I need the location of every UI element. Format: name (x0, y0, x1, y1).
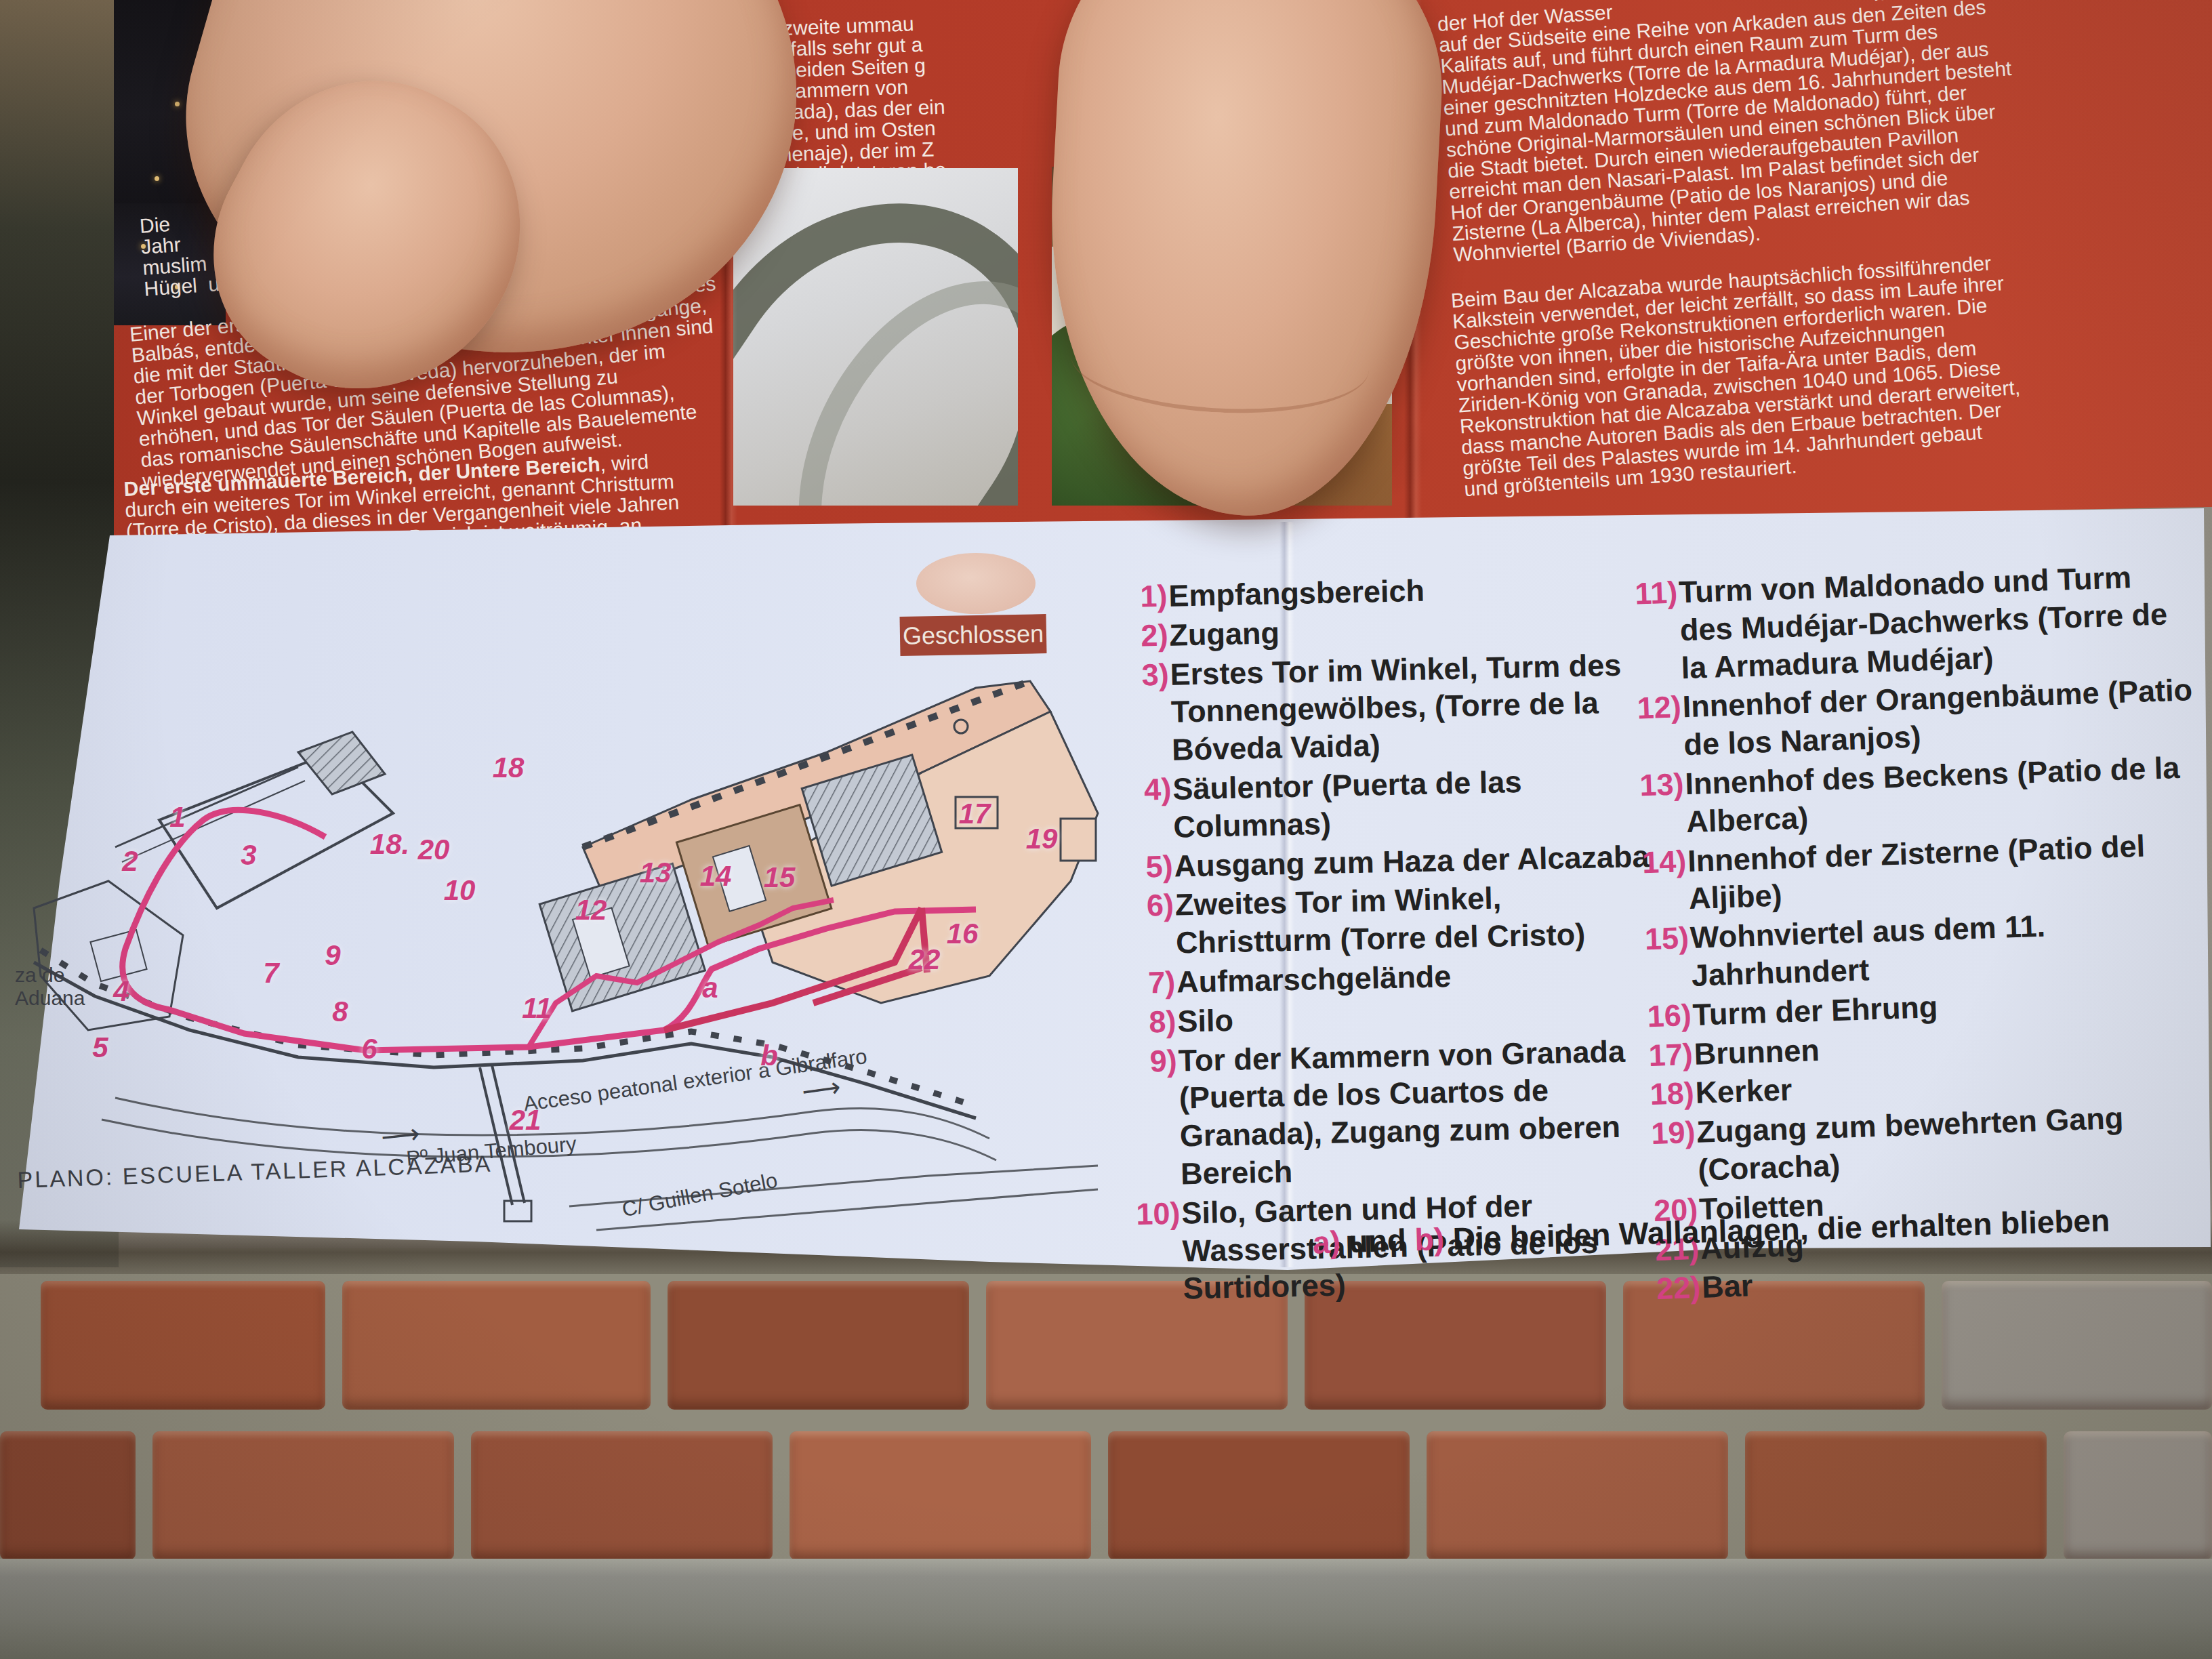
legend-item-number: 2) (1108, 617, 1168, 656)
legend-item-text: Innenhof der Orangenbäume (Patio de los … (1681, 672, 2196, 764)
legend-item-number: 12) (1618, 689, 1683, 766)
legend-column-right: 11)Turm von Maldonado und Turm des Mudéj… (1614, 556, 2212, 1310)
legend-item-text: Kerker (1694, 1071, 1793, 1112)
legend-item-number: 5) (1113, 847, 1173, 886)
map-marker-17: 17 (959, 798, 991, 830)
legend-item-text: Turm von Maldonado und Turm des Mudéjar-… (1677, 556, 2194, 687)
legend-item-number: 1) (1107, 577, 1168, 617)
map-marker-1: 1 (169, 801, 185, 834)
panel3-paragraph2: Beim Bau der Alcazaba wurde hauptsächlic… (1450, 251, 2025, 499)
brick (1108, 1431, 1410, 1560)
legend-item-text: Empfangsbereich (1167, 572, 1425, 615)
legend-item-text: Brunnen (1692, 1031, 1820, 1073)
brick-stone (1942, 1281, 2212, 1410)
legend-item: 9)Tor der Kammern von Granada (Puerta de… (1117, 1031, 1668, 1194)
footer-b: b) (1414, 1221, 1445, 1257)
legend-item-number: 9) (1117, 1042, 1180, 1194)
legend-item: 6)Zweites Tor im Winkel, Christturm (Tor… (1113, 876, 1664, 964)
legend-item-number: 4) (1111, 771, 1172, 847)
legend-item-text: Zweites Tor im Winkel, Christturm (Torre… (1173, 876, 1664, 962)
brick (152, 1431, 454, 1560)
panel3-paragraph1: der Hof der Wasser weist auf der Südseit… (1437, 0, 2022, 265)
map-marker-8: 8 (332, 996, 348, 1028)
map-marker-2: 2 (122, 845, 138, 878)
legend-column-left: 1)Empfangsbereich2)Zugang3)Erstes Tor im… (1107, 567, 1671, 1311)
brick (1427, 1431, 1728, 1560)
map-marker-16: 16 (947, 918, 979, 950)
legend-item-number: 7) (1115, 964, 1176, 1003)
legend-item-text: Turm der Ehrung (1691, 988, 1938, 1034)
map-marker-14: 14 (700, 860, 732, 893)
map-marker-19: 19 (1026, 823, 1058, 855)
brick (471, 1431, 773, 1560)
legend-item-text: Aufmarschgelände (1175, 958, 1452, 1001)
map-marker-b: b (760, 1040, 778, 1072)
brick (0, 1431, 136, 1560)
closed-area-oval (916, 553, 1036, 614)
legend-item-number: 15) (1626, 919, 1691, 997)
photo-of-alcazaba-brochure: MALAGA Die Jahr muslim He Hügel und ist … (0, 0, 2212, 1659)
map-marker-20: 20 (418, 834, 450, 866)
legend-item-text: Innenhof der Zisterne (Patio del Aljibe) (1685, 825, 2201, 918)
legend-item-text: Erstes Tor im Winkel, Turm des Tonnengew… (1168, 645, 1660, 769)
legend-item-text: Zugang zum bewehrten Gang (Coracha) (1695, 1097, 2211, 1189)
brick (41, 1281, 325, 1410)
map-marker-3: 3 (241, 839, 256, 872)
map-marker-7: 7 (263, 957, 279, 989)
brick (1745, 1431, 2047, 1560)
brick (668, 1281, 969, 1410)
footer-a: a) (1312, 1224, 1340, 1260)
map-marker-6: 6 (361, 1033, 377, 1065)
legend-item-number: 22) (1637, 1269, 1701, 1309)
legend-item-text: Innenhof des Beckens (Patio de la Alberc… (1683, 748, 2199, 841)
arch-interior-photo (733, 168, 1018, 506)
map-marker-13: 13 (640, 857, 672, 889)
map-marker-15: 15 (764, 861, 796, 894)
legend-item-number: 17) (1630, 1036, 1694, 1076)
legend-item-number: 10) (1120, 1194, 1182, 1309)
brick (342, 1281, 651, 1410)
legend-item-number: 11) (1614, 573, 1680, 689)
legend-item-number: 6) (1113, 886, 1174, 963)
legend-item-text: Tor der Kammern von Granada (Puerta de l… (1176, 1031, 1669, 1193)
stone-ledge (0, 1559, 2212, 1659)
legend-item-number: 13) (1621, 765, 1686, 843)
map-marker-18: 18 (493, 752, 525, 784)
plaza-aduana-label: za de Aduana (15, 964, 85, 1010)
legend-item: 4)Säulentor (Puerta de las Columnas) (1111, 760, 1662, 848)
map-marker-9: 9 (325, 939, 340, 972)
map-marker-12: 12 (575, 894, 607, 926)
legend-item-text: Wohnviertel aus dem 11. Jahrhundert (1688, 902, 2204, 995)
legend-item-number: 8) (1116, 1002, 1176, 1042)
legend-item-text: Bar (1700, 1267, 1753, 1307)
closed-badge: Geschlossen (900, 614, 1047, 656)
legend-item-text: Säulentor (Puerta de las Columnas) (1171, 760, 1662, 846)
legend-item-number: 18) (1631, 1074, 1695, 1114)
direction-arrow: ⟶ (380, 1118, 422, 1153)
brick (790, 1431, 1091, 1560)
footer-und: und (1340, 1222, 1415, 1259)
map-marker-4: 4 (113, 975, 129, 1008)
legend-item-number: 16) (1629, 996, 1692, 1036)
direction-arrow: ⟶ (800, 1071, 842, 1107)
legend-item-text: Silo (1176, 1002, 1234, 1041)
legend-item-number: 14) (1623, 842, 1688, 920)
legend-item-number: 19) (1633, 1113, 1698, 1191)
legend-item: 3)Erstes Tor im Winkel, Turm des Tonneng… (1109, 645, 1660, 770)
map-marker-a: a (702, 972, 718, 1004)
legend-item: 11)Turm von Maldonado und Turm des Mudéj… (1614, 556, 2194, 689)
brick-stone (2064, 1431, 2212, 1560)
legend-item-text: Zugang (1168, 614, 1280, 654)
map-marker-18: 18. (370, 828, 409, 861)
map-marker-22: 22 (909, 943, 941, 976)
map-marker-5: 5 (92, 1031, 108, 1064)
brick-row (0, 1423, 2212, 1569)
map-marker-21: 21 (510, 1104, 541, 1136)
legend-item-number: 3) (1109, 655, 1170, 770)
map-marker-11: 11 (522, 992, 552, 1025)
map-marker-10: 10 (444, 874, 476, 907)
